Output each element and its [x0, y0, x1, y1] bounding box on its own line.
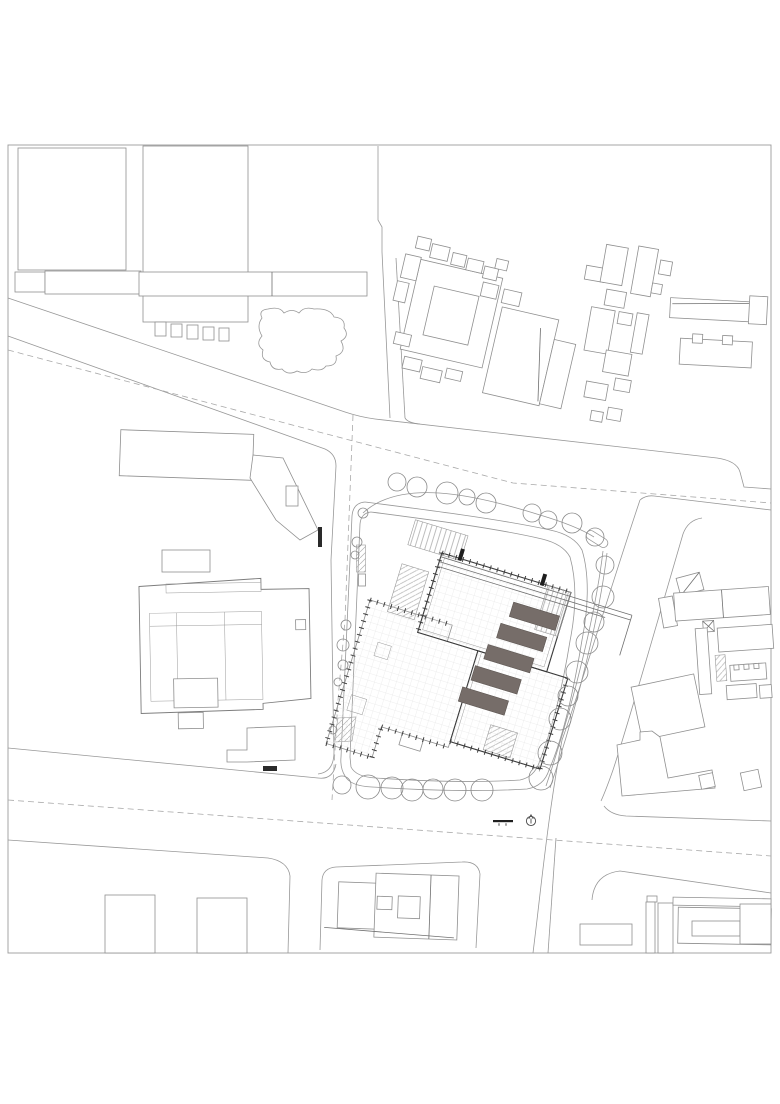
scale-bar: [493, 820, 513, 826]
tree: [476, 493, 496, 513]
tree: [471, 779, 493, 801]
platform: [359, 574, 366, 586]
tree: [539, 511, 557, 529]
site-plan-drawing: [0, 0, 780, 1104]
tree: [529, 766, 553, 790]
tree: [423, 779, 443, 799]
tree: [592, 586, 614, 608]
dark-accent-bar: [263, 766, 277, 771]
tree: [334, 678, 342, 686]
platform-hatch: [357, 545, 366, 572]
buildings-north-cluster: [377, 234, 674, 430]
tree: [341, 620, 351, 630]
ramp-hatch: [387, 564, 428, 620]
north-arrow-icon: [526, 815, 535, 826]
tree: [401, 779, 423, 801]
buildings-south: [105, 862, 771, 953]
tree: [459, 489, 475, 505]
tree: [388, 473, 406, 491]
dark-accent-bar: [318, 527, 322, 547]
tree: [333, 776, 351, 794]
central-building: [326, 514, 640, 818]
tree: [596, 556, 614, 574]
tree: [407, 477, 427, 497]
tree: [523, 504, 541, 522]
buildings-west: [119, 430, 322, 771]
buildings-northeast: [667, 292, 768, 369]
tree: [576, 632, 598, 654]
buildings-east: [617, 572, 777, 796]
canopy-band-hatch: [408, 520, 468, 561]
site-plan-page: [0, 0, 780, 1104]
tree: [338, 660, 348, 670]
buildings-northwest: [15, 146, 367, 373]
